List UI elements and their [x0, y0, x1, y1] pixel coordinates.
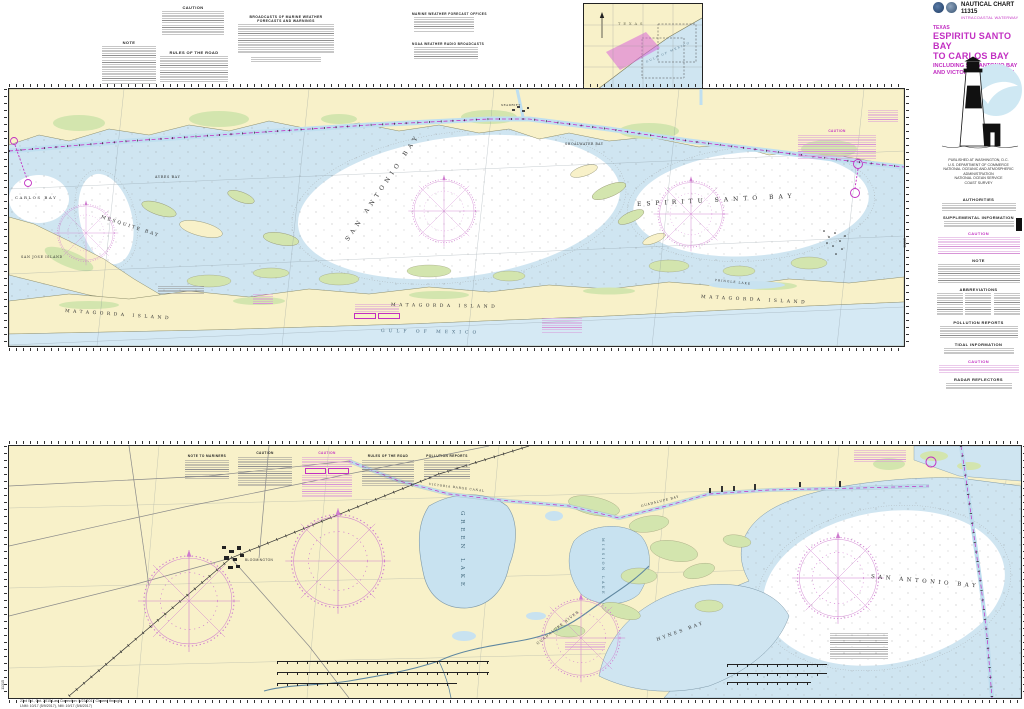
right-margin-notes: AUTHORITIES SUPPLEMENTAL INFORMATION CAU… [933, 193, 1024, 389]
fine-print [302, 457, 352, 467]
table-title: MARINE WEATHER FORECAST OFFICES [412, 12, 476, 16]
edition-line-2: LNM: 10/17 (5/9/2017), NM: 19/17 (5/6/20… [20, 704, 121, 709]
island-note [252, 293, 274, 304]
section-heading: NOTE [933, 258, 1024, 263]
fine-print [942, 203, 1016, 211]
margin-note-1: NOTE [100, 40, 158, 84]
lower-chart-map [9, 446, 1021, 698]
scale-note [829, 632, 889, 659]
section-heading: AUTHORITIES [933, 197, 1024, 202]
fine-print [162, 11, 224, 35]
abbreviations-section: ABBREVIATIONS [933, 287, 1024, 316]
section-heading: CAUTION [933, 231, 1024, 236]
authorities-section: AUTHORITIES [933, 197, 1024, 211]
chart-caution-note: CAUTION [796, 129, 878, 159]
table-footnote [251, 57, 321, 62]
upper-chart-panel: CAUTION CARLOS BAY MESQUITE BAY AYRES BA… [8, 88, 905, 347]
lighthouse-emblem [936, 56, 1024, 154]
forecast-offices-table: MARINE WEATHER FORECAST OFFICES [412, 12, 476, 33]
note-heading: POLLUTION REPORTS [423, 454, 471, 459]
green-lake-water [419, 495, 515, 608]
mission-lake-water [569, 526, 649, 603]
caution-note-1: CAUTION [237, 451, 293, 487]
section-heading: SUPPLEMENTAL INFORMATION [933, 215, 1024, 220]
scale-bar [277, 683, 457, 686]
fine-print [854, 450, 906, 463]
fine-print [302, 475, 352, 497]
note-heading: RULES OF THE ROAD [361, 454, 415, 459]
section-heading: RADAR REFLECTORS [933, 377, 1024, 382]
fine-print [938, 264, 1020, 283]
index-inset-map: TEXAS GULF OF MEXICO [583, 3, 703, 90]
table-body [414, 47, 478, 61]
fine-print [939, 365, 1019, 373]
fine-print [238, 457, 292, 487]
compass-rose [54, 201, 119, 266]
sheet-number-side: 11315 [903, 238, 908, 248]
border-ticks [9, 84, 904, 87]
table-title: NOAA WEATHER RADIO BROADCASTS [412, 42, 480, 46]
edition-note: 23rd Ed., Oct. 2015 Last Correction: 5/2… [20, 699, 121, 708]
fine-print [994, 293, 1020, 316]
note-heading: CAUTION [796, 129, 878, 134]
label-green-lake: GREEN LAKE [459, 511, 465, 590]
magenta-box [378, 313, 400, 319]
edition-line-1: 23rd Ed., Oct. 2015 Last Correction: 5/2… [20, 699, 121, 704]
label-shoalwater-bay: SHOALWATER BAY [565, 142, 603, 146]
border-ticks [4, 446, 7, 698]
small-lake [545, 511, 563, 521]
fine-print [944, 348, 1014, 355]
fine-print [940, 326, 1018, 338]
supplemental-section: SUPPLEMENTAL INFORMATION [933, 215, 1024, 227]
scale-bar [727, 682, 811, 685]
magenta-box [328, 468, 349, 474]
river-branch [439, 661, 451, 698]
fine-print [868, 110, 898, 122]
note-heading: RULES OF THE ROAD [158, 50, 230, 55]
edge-index-tab [1016, 218, 1022, 231]
fine-print [542, 318, 582, 334]
nos-logo-icon [946, 2, 957, 13]
scale-bar [277, 661, 489, 664]
fine-print [102, 46, 156, 84]
compass-rose [537, 594, 625, 682]
rules-of-road-note: RULES OF THE ROAD [361, 454, 415, 486]
publisher-line: COAST SURVEY [933, 181, 1024, 186]
table-title: BROADCASTS OF MARINE WEATHER FORECASTS A… [237, 15, 335, 23]
scale-bar [277, 672, 489, 675]
fine-print [944, 221, 1014, 227]
tidal-information-section: TIDAL INFORMATION [933, 342, 1024, 355]
magenta-box [354, 313, 376, 319]
note-section: NOTE [933, 258, 1024, 283]
label-bloomington: BLOOMINGTON [245, 558, 273, 562]
pipeline-caution-note: CAUTION [301, 451, 353, 497]
fine-print [937, 293, 963, 316]
note-heading: CAUTION [160, 5, 226, 10]
chart-sheet: NOTE CAUTION RULES OF THE ROAD BROADCAST… [0, 0, 1024, 709]
chart-series: INTRACOASTAL WATERWAY [961, 16, 1024, 21]
corner-caution-note [853, 449, 907, 463]
note-to-mariners: NOTE TO MARINERS [184, 454, 230, 480]
table-body [238, 24, 334, 54]
table-body [414, 17, 474, 33]
margin-note-2: CAUTION [160, 5, 226, 35]
inset-state-label: TEXAS [618, 22, 646, 26]
sheet-number-corner: 11315 [1, 680, 6, 690]
fine-print [565, 642, 605, 650]
publisher-block: PUBLISHED AT WASHINGTON, D.C. U.S. DEPAR… [933, 158, 1024, 186]
black-note [157, 285, 205, 294]
small-lake [526, 612, 546, 620]
margin-note-3: RULES OF THE ROAD [158, 50, 230, 82]
border-ticks [906, 89, 909, 346]
border-ticks [9, 348, 904, 351]
compass-rose [138, 550, 240, 652]
scale-bar [727, 664, 827, 667]
weather-broadcast-table: BROADCASTS OF MARINE WEATHER FORECASTS A… [237, 15, 335, 62]
publisher-line: NATIONAL OCEANIC AND ATMOSPHERIC ADMINIS… [933, 167, 1024, 176]
fine-print [798, 135, 876, 159]
radio-broadcast-table: NOAA WEATHER RADIO BROADCASTS [412, 42, 480, 61]
label-carlos-bay: CARLOS BAY [15, 195, 57, 200]
caution-section: CAUTION [933, 231, 1024, 254]
fine-print [160, 56, 228, 82]
note-heading: CAUTION [301, 451, 353, 456]
fine-print [938, 237, 1020, 254]
fine-print [362, 460, 414, 486]
section-heading: POLLUTION REPORTS [933, 320, 1024, 325]
inset-north-arrowhead [600, 12, 604, 18]
small-lake [452, 631, 476, 641]
fine-print [253, 294, 273, 304]
border-ticks [9, 700, 1021, 703]
radar-reflectors-section: RADAR REFLECTORS [933, 377, 1024, 389]
section-heading: TIDAL INFORMATION [933, 342, 1024, 347]
label-san-jose-island: SAN JOSE ISLAND [21, 255, 63, 259]
fine-print [424, 460, 470, 480]
fine-print [158, 286, 204, 294]
noaa-logo-icon [933, 2, 944, 13]
fine-print [830, 633, 888, 659]
compass-rose [408, 175, 479, 246]
lower-chart-panel: NOTE TO MARINERS CAUTION CAUTION RULES O… [8, 445, 1022, 699]
label-seadrift: SEADRIFT [501, 103, 521, 107]
note-heading: NOTE [100, 40, 158, 45]
section-heading: CAUTION [933, 359, 1024, 364]
fine-print [965, 293, 991, 316]
fine-print [185, 460, 229, 480]
black-note-2 [867, 109, 899, 122]
gulf-caution-note [541, 317, 583, 334]
border-ticks [9, 441, 1021, 444]
pollution-reports-note: POLLUTION REPORTS [423, 454, 471, 480]
compass-rose [654, 177, 729, 252]
note-heading: NOTE TO MARINERS [184, 454, 230, 459]
bay-note [557, 641, 613, 650]
fine-print [946, 383, 1012, 389]
compass-rose [285, 508, 390, 613]
caution-2-section: CAUTION [933, 359, 1024, 373]
magenta-box [305, 468, 326, 474]
label-ayres-bay: AYRES BAY [155, 175, 180, 179]
chart-title-line1: ESPIRITU SANTO BAY [933, 31, 1024, 51]
label-mission-lake: MISSION LAKE [601, 538, 605, 596]
chart-number: NAUTICAL CHART 11315 [961, 2, 1024, 16]
pollution-reports-section: POLLUTION REPORTS [933, 320, 1024, 338]
note-heading: CAUTION [237, 451, 293, 456]
border-ticks [4, 89, 7, 346]
scale-bar [727, 673, 827, 676]
